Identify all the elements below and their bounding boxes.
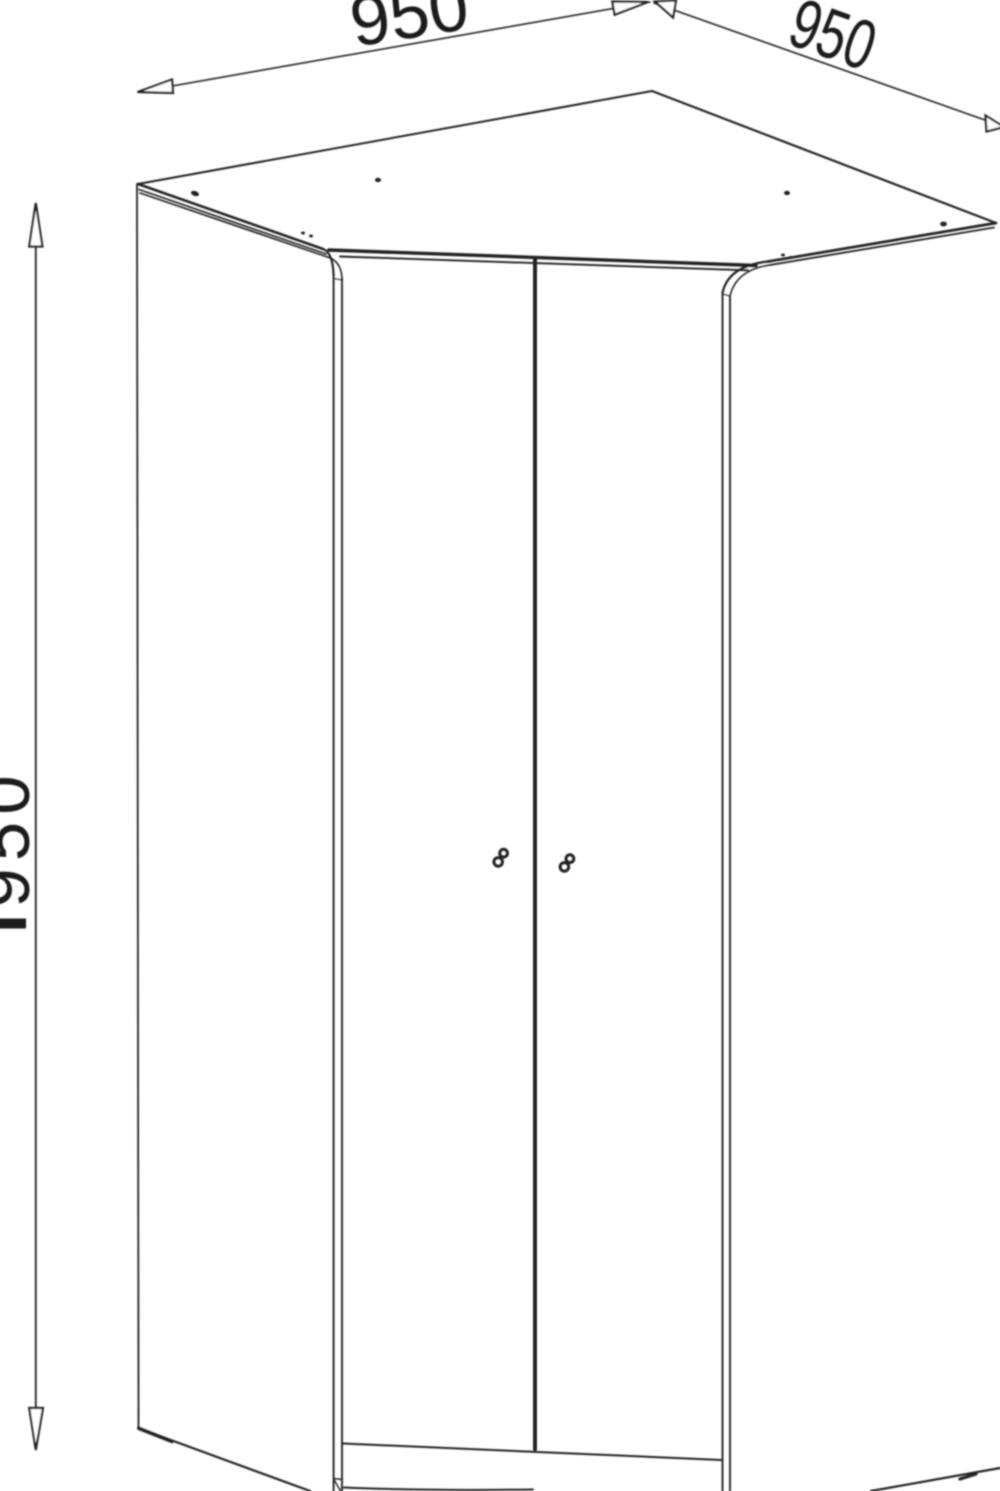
- svg-text:950: 950: [0, 768, 45, 907]
